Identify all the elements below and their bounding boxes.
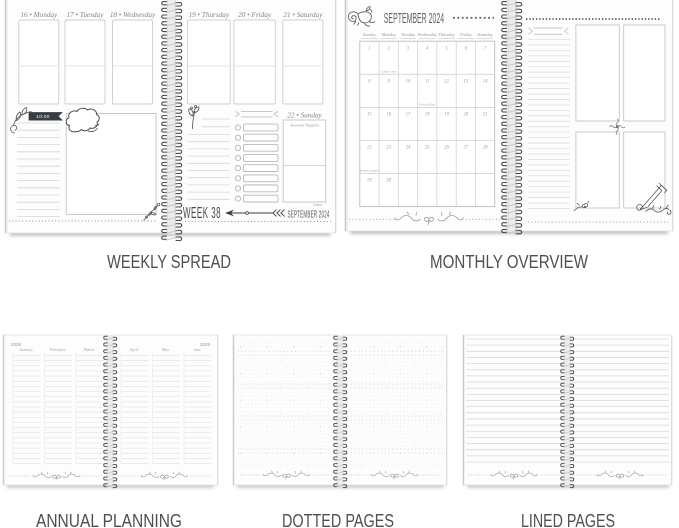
svg-text:WEEKLY SPREAD: WEEKLY SPREAD bbox=[107, 252, 231, 272]
svg-text:22 • Sunday: 22 • Sunday bbox=[287, 112, 322, 120]
svg-text:ANNUAL PLANNING: ANNUAL PLANNING bbox=[36, 511, 182, 528]
svg-text:Wednesday: Wednesday bbox=[418, 32, 437, 37]
svg-text:Friday: Friday bbox=[459, 32, 472, 37]
svg-text:Tuesday: Tuesday bbox=[401, 32, 415, 37]
svg-text:18: 18 bbox=[425, 113, 430, 118]
svg-text:March: March bbox=[82, 347, 94, 352]
svg-text:17 • Tuesday: 17 • Tuesday bbox=[67, 11, 105, 19]
svg-text:17: 17 bbox=[406, 113, 411, 118]
svg-text:28: 28 bbox=[483, 146, 488, 151]
svg-text:15: 15 bbox=[367, 113, 372, 118]
svg-text:11: 11 bbox=[425, 80, 429, 85]
svg-text:20: 20 bbox=[463, 113, 468, 118]
svg-text:January: January bbox=[19, 347, 33, 352]
svg-text:February: February bbox=[49, 347, 66, 352]
svg-text:20 • Friday: 20 • Friday bbox=[238, 11, 272, 19]
svg-text:Notes: Notes bbox=[313, 203, 322, 207]
svg-text:29: 29 bbox=[367, 179, 372, 184]
svg-text:16: 16 bbox=[386, 113, 391, 118]
svg-text:19 • Thursday: 19 • Thursday bbox=[189, 11, 230, 19]
svg-text:Thursday: Thursday bbox=[438, 32, 454, 37]
svg-text:12: 12 bbox=[444, 80, 449, 85]
svg-text:13: 13 bbox=[463, 80, 468, 85]
svg-text:10:00: 10:00 bbox=[36, 114, 50, 120]
svg-text:21: 21 bbox=[483, 113, 488, 118]
svg-text:26: 26 bbox=[444, 146, 449, 151]
svg-text:25: 25 bbox=[425, 146, 430, 151]
svg-text:24: 24 bbox=[406, 146, 411, 151]
svg-text:1: 1 bbox=[368, 46, 370, 51]
svg-text:22: 22 bbox=[367, 146, 372, 151]
svg-text:DOTTED PAGES: DOTTED PAGES bbox=[282, 511, 394, 528]
svg-text:WEEK 38: WEEK 38 bbox=[183, 204, 221, 222]
svg-text:MONTHLY OVERVIEW: MONTHLY OVERVIEW bbox=[430, 252, 588, 272]
svg-text:10: 10 bbox=[406, 80, 411, 85]
svg-text:16 • Monday: 16 • Monday bbox=[20, 11, 58, 19]
svg-text:SEPTEMBER 2024: SEPTEMBER 2024 bbox=[288, 208, 330, 220]
svg-text:Awesome happens: Awesome happens bbox=[289, 123, 320, 128]
svg-text:27: 27 bbox=[463, 146, 468, 151]
svg-text:Monday: Monday bbox=[381, 32, 396, 37]
svg-text:June: June bbox=[193, 347, 201, 352]
svg-text:21 • Saturday: 21 • Saturday bbox=[283, 11, 323, 19]
svg-text:30: 30 bbox=[386, 179, 391, 184]
svg-text:Saturday: Saturday bbox=[477, 32, 492, 37]
svg-text:Sunday: Sunday bbox=[363, 32, 376, 37]
svg-text:LINED PAGES: LINED PAGES bbox=[521, 511, 615, 528]
svg-text:23: 23 bbox=[386, 146, 391, 151]
svg-text:18 • Wednesday: 18 • Wednesday bbox=[110, 11, 156, 19]
svg-text:Labor Day: Labor Day bbox=[380, 69, 396, 73]
svg-text:SEPTEMBER 2024: SEPTEMBER 2024 bbox=[384, 12, 444, 27]
svg-text:Autumn begins: Autumn begins bbox=[358, 169, 380, 173]
svg-text:19: 19 bbox=[444, 113, 449, 118]
svg-text:14: 14 bbox=[483, 80, 488, 85]
svg-text:April: April bbox=[129, 347, 139, 352]
svg-text:2025: 2025 bbox=[200, 342, 211, 347]
svg-text:Patriot Day: Patriot Day bbox=[418, 102, 436, 106]
svg-text:May: May bbox=[161, 347, 170, 352]
